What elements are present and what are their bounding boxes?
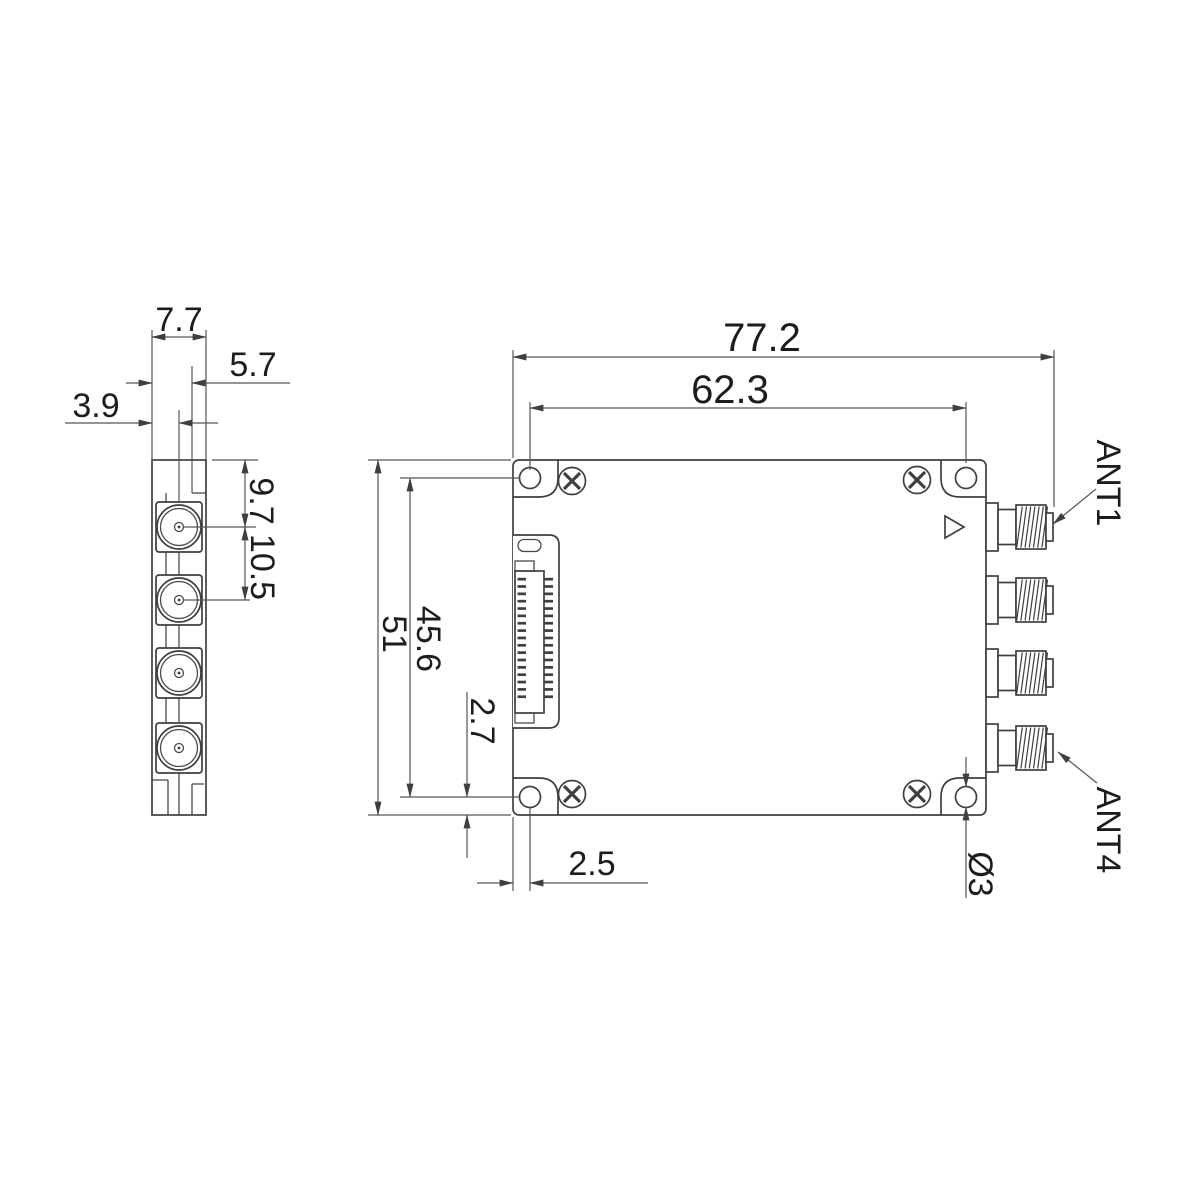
sma-connector-3 <box>986 649 1053 697</box>
sma-center-pin <box>178 599 181 602</box>
pin <box>518 688 527 691</box>
dim-label-hole-diameter: Ø3 <box>961 851 999 896</box>
top-view <box>513 460 1053 815</box>
dimension-drawing: 7.7 5.7 3.9 9.7 10.5 77.2 62.3 51 45.6 2… <box>0 0 1200 1200</box>
pin <box>518 629 527 632</box>
sma-base-flange <box>986 649 998 697</box>
dim-label-connector-top-offset: 9.7 <box>242 477 280 524</box>
dim-label-hole-offset-bottom: 2.7 <box>463 697 501 744</box>
sma-thread-section <box>1016 651 1046 695</box>
body-outline <box>513 460 986 815</box>
sma-tip <box>1046 659 1053 687</box>
pin <box>545 681 554 684</box>
side-sma-connector-4 <box>156 723 202 773</box>
sma-thread-section <box>1016 505 1046 549</box>
dim-label-hole-span-x: 62.3 <box>691 368 769 412</box>
sma-center-pin <box>178 747 181 750</box>
sma-center-pin <box>178 672 181 675</box>
dim-label-side-inner-offset: 5.7 <box>229 346 276 384</box>
pin <box>545 622 554 625</box>
pin <box>545 578 554 581</box>
sma-thread-section <box>1016 578 1046 622</box>
pin <box>545 600 554 603</box>
dim-label-side-center-offset: 3.9 <box>72 387 119 425</box>
sma-center-pin <box>178 526 181 529</box>
pin <box>545 651 554 654</box>
pin <box>518 651 527 654</box>
pin <box>518 607 527 610</box>
sma-base-flange <box>986 576 998 624</box>
pin <box>518 615 527 618</box>
sma-barrel <box>998 656 1016 691</box>
sma-tip <box>1046 586 1053 614</box>
pin <box>545 688 554 691</box>
pin <box>518 637 527 640</box>
ant1-label: ANT1 <box>1089 440 1127 527</box>
pin <box>518 622 527 625</box>
pin <box>518 673 527 676</box>
pin <box>545 644 554 647</box>
pin <box>518 593 527 596</box>
pin <box>518 600 527 603</box>
pin <box>545 585 554 588</box>
sma-connector-1 <box>986 503 1053 551</box>
pin <box>545 629 554 632</box>
pin <box>545 666 554 669</box>
dim-label-body-height: 51 <box>375 615 413 653</box>
sma-tip <box>1046 513 1053 541</box>
sma-connector-4 <box>986 724 1053 772</box>
sma-thread-section <box>1016 726 1046 770</box>
drawing-canvas: 7.7 5.7 3.9 9.7 10.5 77.2 62.3 51 45.6 2… <box>0 0 1200 1200</box>
sma-barrel <box>998 583 1016 618</box>
pin <box>518 644 527 647</box>
sma-connectors <box>986 503 1053 772</box>
pin <box>518 585 527 588</box>
dim-label-hole-offset-left: 2.5 <box>568 845 615 883</box>
dim-label-side-thickness: 7.7 <box>155 301 202 339</box>
pin <box>518 659 527 662</box>
pin <box>545 637 554 640</box>
pin <box>545 659 554 662</box>
side-view <box>152 460 206 815</box>
pin <box>545 673 554 676</box>
side-sma-connector-3 <box>156 648 202 698</box>
sma-base-flange <box>986 503 998 551</box>
board-connector <box>513 535 559 728</box>
pin <box>518 681 527 684</box>
ant4-leader-line <box>1058 752 1097 783</box>
sma-barrel <box>998 510 1016 545</box>
sma-base-flange <box>986 724 998 772</box>
pin <box>545 695 554 698</box>
pin <box>518 666 527 669</box>
pin <box>518 578 527 581</box>
sma-barrel <box>998 731 1016 766</box>
dim-label-hole-span-y: 45.6 <box>409 606 447 672</box>
pin <box>518 695 527 698</box>
ant4-label: ANT4 <box>1089 787 1127 874</box>
sma-tip <box>1046 734 1053 762</box>
pin <box>545 607 554 610</box>
sma-connector-2 <box>986 576 1053 624</box>
pin <box>545 615 554 618</box>
dim-label-connector-pitch: 10.5 <box>243 534 281 600</box>
pin <box>545 593 554 596</box>
dim-label-overall-width: 77.2 <box>723 316 801 360</box>
